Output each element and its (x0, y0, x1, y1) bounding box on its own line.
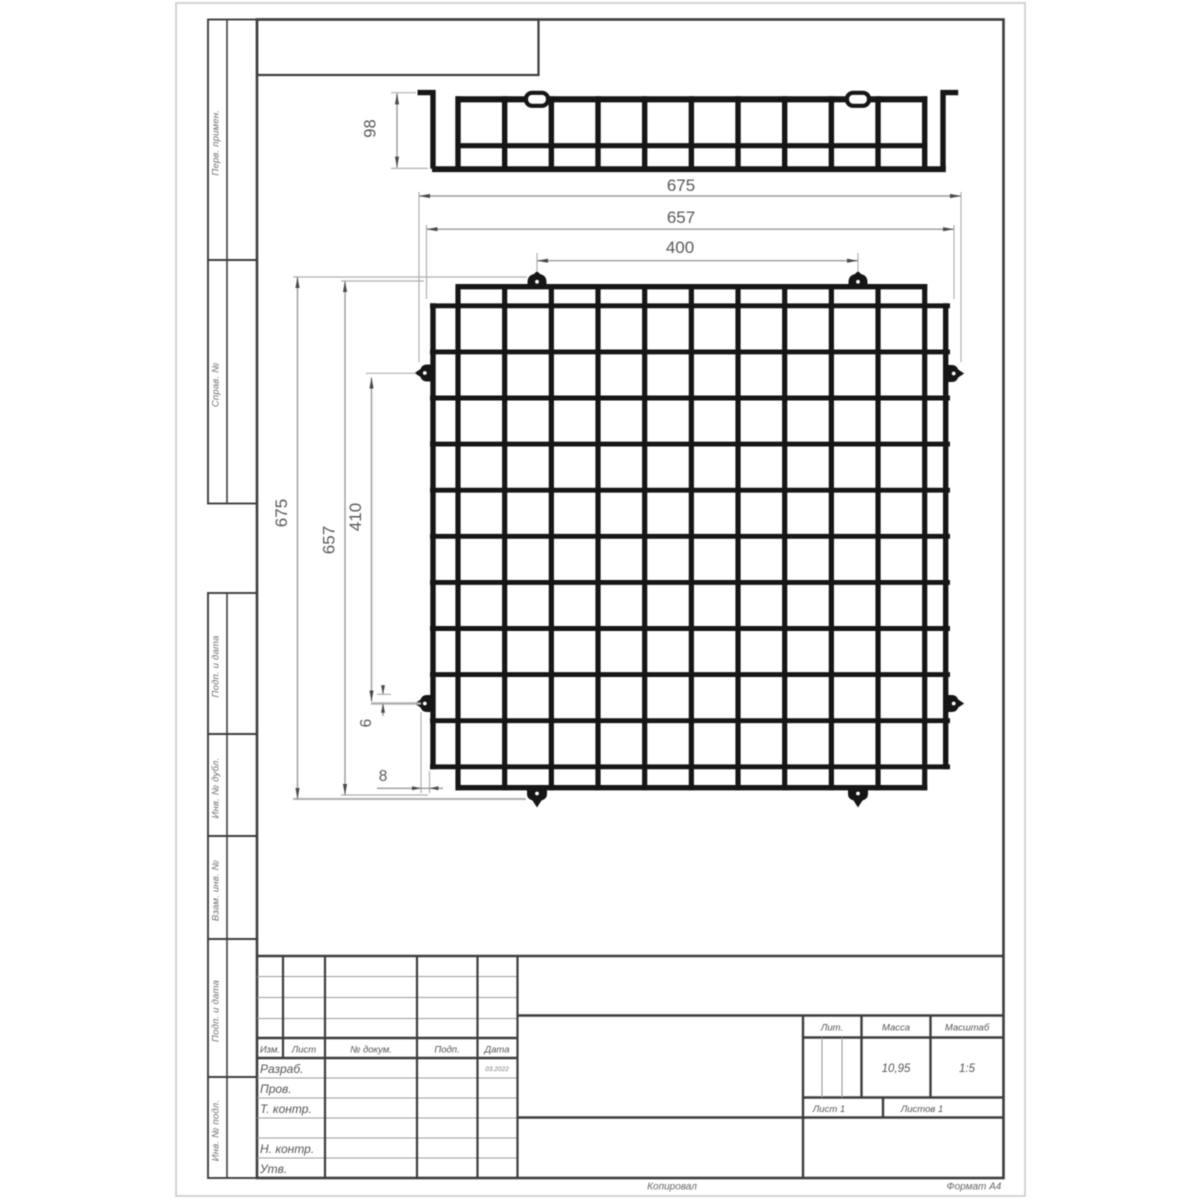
svg-text:Подп. и дата: Подп. и дата (211, 636, 222, 698)
svg-text:Копировал: Копировал (647, 1182, 697, 1193)
svg-text:675: 675 (272, 499, 291, 527)
svg-text:Разраб.: Разраб. (260, 1062, 303, 1076)
svg-text:98: 98 (362, 119, 380, 137)
svg-text:Листов 1: Листов 1 (900, 1104, 944, 1115)
svg-text:657: 657 (667, 208, 695, 227)
svg-text:Лист: Лист (291, 1045, 317, 1056)
svg-text:Формат А4: Формат А4 (947, 1182, 1002, 1193)
svg-text:Подп.: Подп. (434, 1045, 459, 1056)
svg-text:8: 8 (379, 768, 388, 785)
svg-text:Масштаб: Масштаб (945, 1023, 990, 1034)
svg-text:6: 6 (358, 719, 375, 728)
svg-text:410: 410 (346, 503, 365, 531)
svg-text:400: 400 (666, 238, 694, 257)
svg-text:Лист 1: Лист 1 (812, 1104, 845, 1115)
svg-text:Масса: Масса (882, 1023, 910, 1034)
svg-text:Подп. и дата: Подп. и дата (211, 980, 222, 1042)
svg-text:Н. контр.: Н. контр. (260, 1142, 314, 1156)
svg-text:1:5: 1:5 (959, 1063, 976, 1075)
svg-text:675: 675 (667, 176, 695, 195)
svg-text:Пров.: Пров. (260, 1082, 292, 1096)
svg-text:03.2022: 03.2022 (485, 1066, 509, 1073)
svg-text:657: 657 (320, 526, 339, 554)
svg-text:Т. контр.: Т. контр. (260, 1102, 312, 1116)
svg-text:Лит.: Лит. (820, 1023, 843, 1034)
svg-text:Инв. № дубл.: Инв. № дубл. (211, 758, 222, 819)
svg-text:Дата: Дата (483, 1045, 509, 1056)
svg-text:Справ. №: Справ. № (211, 362, 222, 407)
svg-text:Изм.: Изм. (260, 1045, 280, 1056)
svg-text:Утв.: Утв. (259, 1162, 287, 1176)
svg-text:Инв. № подл.: Инв. № подл. (211, 1100, 222, 1161)
svg-text:10,95: 10,95 (882, 1063, 911, 1075)
svg-text:Перв. примен.: Перв. примен. (211, 110, 222, 176)
svg-text:Взам. инв. №: Взам. инв. № (211, 860, 222, 921)
svg-text:№ докум.: № докум. (350, 1045, 392, 1056)
